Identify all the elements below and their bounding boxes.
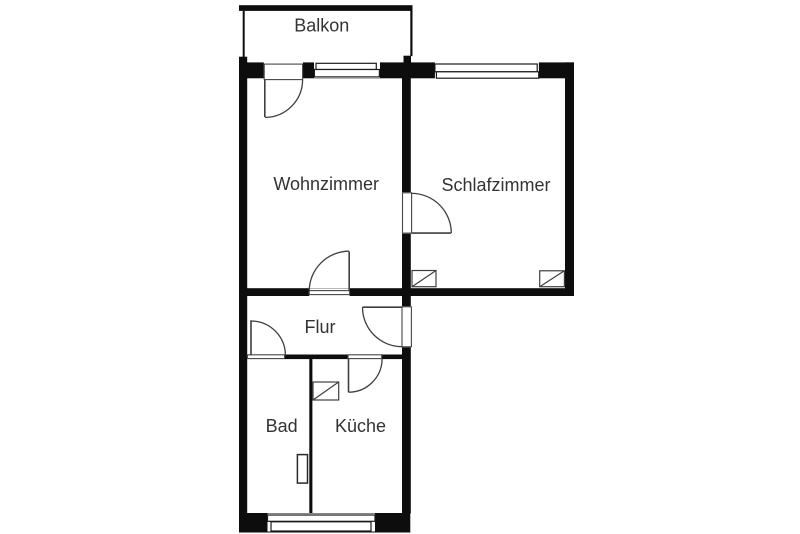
svg-text:Balkon: Balkon — [294, 15, 349, 35]
svg-text:Flur: Flur — [305, 317, 336, 337]
svg-text:Küche: Küche — [335, 416, 386, 436]
svg-text:Bad: Bad — [266, 416, 298, 436]
svg-text:Schlafzimmer: Schlafzimmer — [441, 175, 550, 195]
svg-text:Wohnzimmer: Wohnzimmer — [273, 174, 379, 194]
